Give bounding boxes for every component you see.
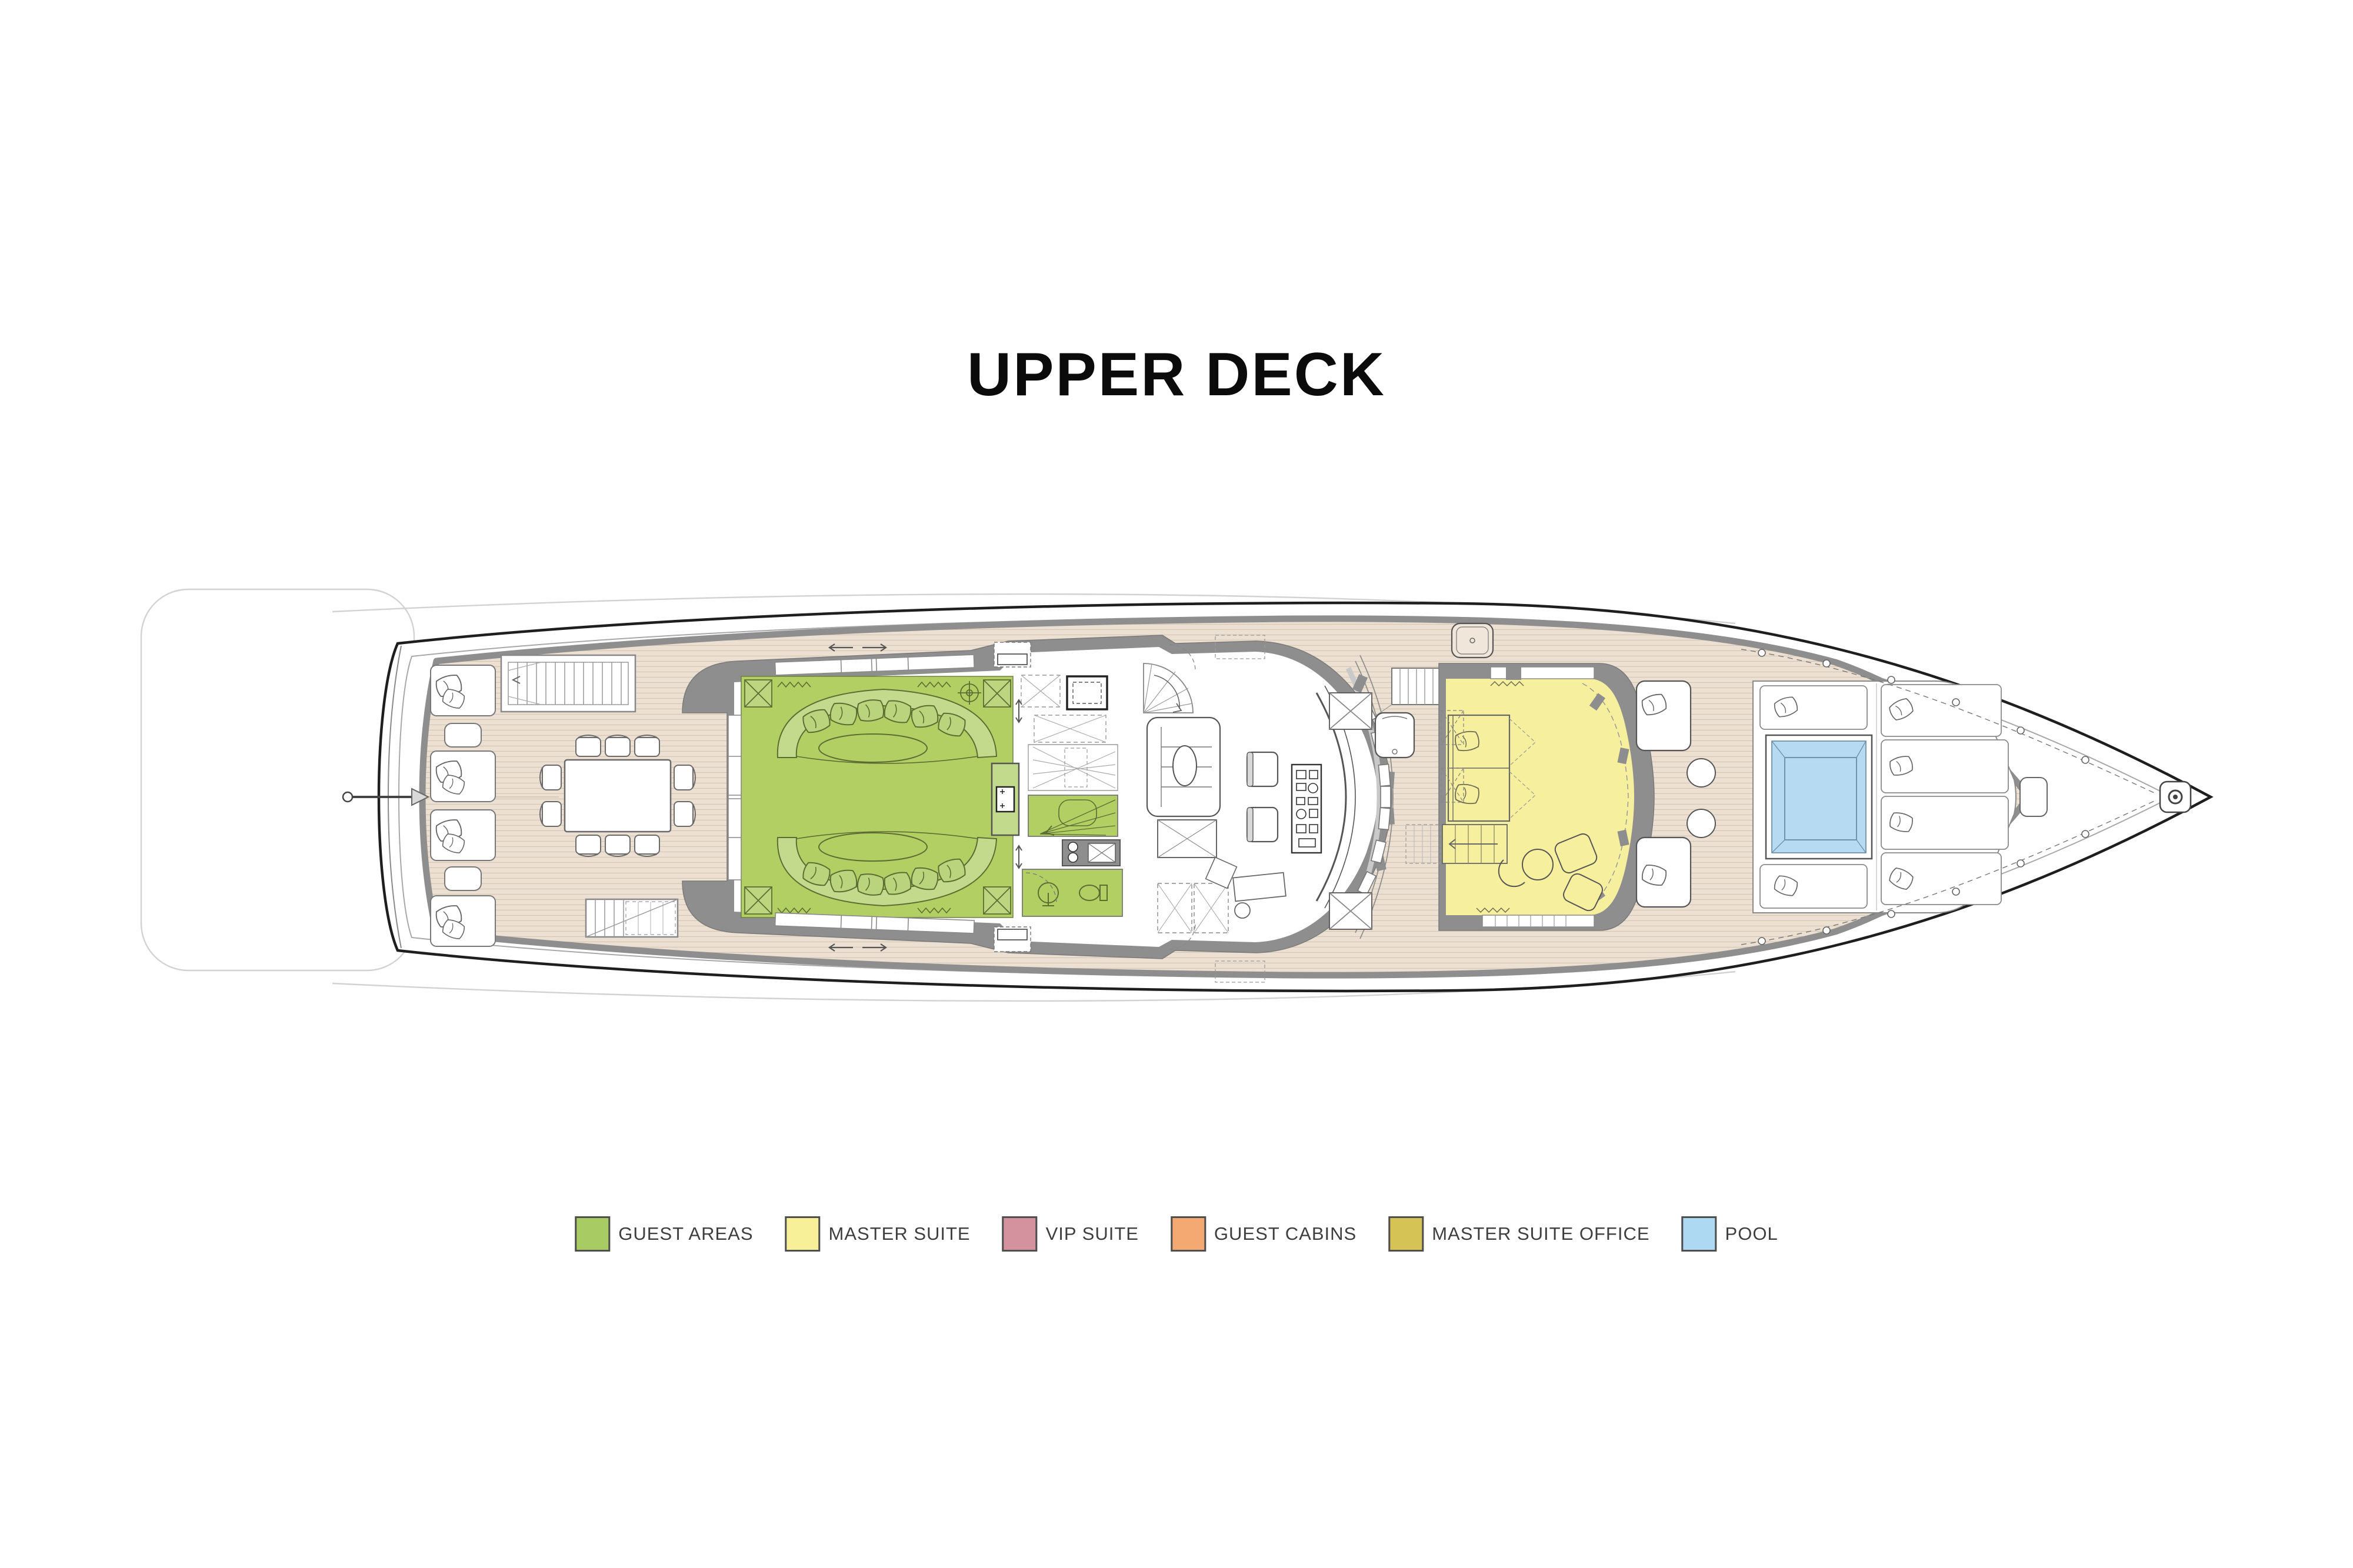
legend-item-guest-cabins: GUEST CABINS xyxy=(1171,1216,1357,1252)
page-title: UPPER DECK xyxy=(0,340,2353,410)
legend-item-pool: POOL xyxy=(1682,1216,1778,1252)
legend-label-master-suite-office: MASTER SUITE OFFICE xyxy=(1432,1223,1649,1245)
legend-swatch-master-suite xyxy=(785,1216,821,1252)
pool xyxy=(1766,735,1872,859)
legend-swatch-master-suite-office xyxy=(1388,1216,1424,1252)
walkway-bench xyxy=(1452,623,1493,658)
foyer-armchair xyxy=(1375,713,1414,758)
legend-label-pool: POOL xyxy=(1725,1223,1778,1245)
deck-plan xyxy=(0,0,2353,1568)
legend-label-vip-suite: VIP SUITE xyxy=(1046,1223,1139,1245)
stairs-down xyxy=(1028,795,1118,836)
stairs-to-sundeck xyxy=(501,655,635,712)
legend-item-master-suite: MASTER SUITE xyxy=(785,1216,971,1252)
legend: GUEST AREAS MASTER SUITE VIP SUITE GUEST… xyxy=(575,1216,1778,1252)
legend-swatch-guest-areas xyxy=(575,1216,610,1252)
day-head xyxy=(1022,869,1122,916)
legend-label-guest-areas: GUEST AREAS xyxy=(618,1223,753,1245)
master-suite xyxy=(1406,663,1654,930)
anchor-windlass xyxy=(2160,782,2191,812)
legend-swatch-guest-cabins xyxy=(1171,1216,1206,1252)
stairs-to-main-deck xyxy=(586,899,678,937)
legend-item-vip-suite: VIP SUITE xyxy=(1002,1216,1139,1252)
bow-seat xyxy=(2020,778,2047,816)
wet-bar xyxy=(1062,840,1120,866)
legend-item-guest-areas: GUEST AREAS xyxy=(575,1216,753,1252)
stairwell xyxy=(1028,745,1118,790)
legend-label-guest-cabins: GUEST CABINS xyxy=(1214,1223,1357,1245)
tv-cabinet xyxy=(992,763,1019,835)
legend-swatch-vip-suite xyxy=(1002,1216,1038,1252)
sky-lounge xyxy=(728,655,1019,933)
legend-swatch-pool xyxy=(1682,1216,1717,1252)
legend-item-master-suite-office: MASTER SUITE OFFICE xyxy=(1388,1216,1649,1252)
legend-label-master-suite: MASTER SUITE xyxy=(829,1223,971,1245)
bridge-sofa xyxy=(1147,718,1220,816)
